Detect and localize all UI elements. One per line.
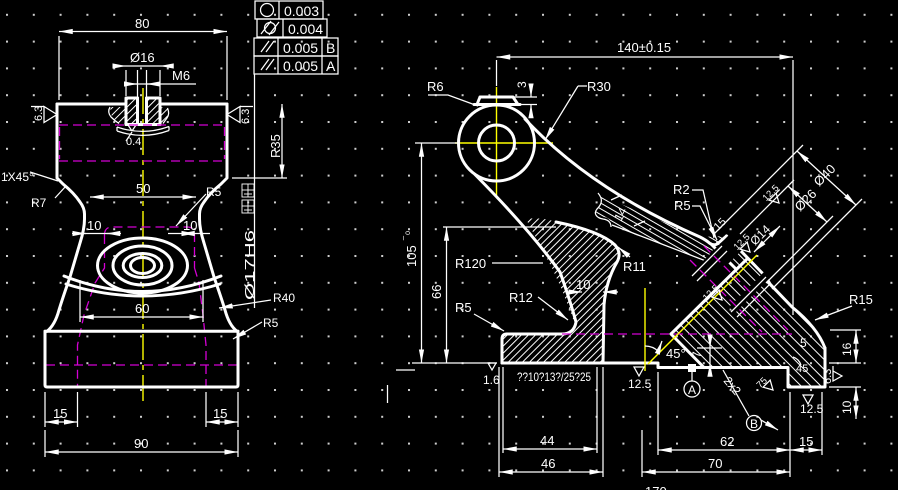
svg-text:12.5: 12.5 — [800, 402, 824, 416]
svg-text:15: 15 — [799, 434, 813, 449]
svg-text:170: 170 — [645, 484, 667, 490]
svg-text:Ø17H6: Ø17H6 — [242, 230, 257, 300]
svg-text:44: 44 — [540, 433, 554, 448]
svg-text:B: B — [326, 40, 335, 56]
svg-text:45: 45 — [796, 363, 808, 375]
svg-text:5: 5 — [800, 336, 807, 350]
svg-text:90: 90 — [134, 436, 148, 451]
svg-text:0.4: 0.4 — [126, 136, 141, 148]
svg-text:R5: R5 — [455, 300, 472, 315]
svg-text:6.3: 6.3 — [33, 106, 45, 121]
svg-text:6.3: 6.3 — [240, 109, 252, 124]
svg-text:140±0.15: 140±0.15 — [617, 40, 671, 55]
svg-text:0.005: 0.005 — [283, 40, 318, 56]
svg-text:Ø16: Ø16 — [130, 50, 155, 65]
svg-text:15: 15 — [53, 406, 67, 421]
svg-text:10: 10 — [576, 277, 590, 292]
svg-text:R2: R2 — [673, 182, 690, 197]
svg-text:R5: R5 — [263, 316, 279, 330]
svg-text:R120: R120 — [455, 256, 486, 271]
svg-text:10: 10 — [87, 218, 101, 233]
svg-text:R5: R5 — [206, 185, 222, 199]
svg-text:66: 66 — [429, 285, 444, 299]
svg-text:7: 7 — [690, 351, 704, 358]
svg-text:R35: R35 — [268, 134, 283, 158]
svg-text:45°: 45° — [666, 346, 686, 361]
svg-text:R5: R5 — [674, 198, 691, 213]
svg-text:M6: M6 — [172, 68, 190, 83]
svg-text:R15: R15 — [849, 292, 873, 307]
svg-text:105: 105 — [404, 245, 419, 267]
svg-text:0.004: 0.004 — [288, 21, 323, 37]
svg-text:R6: R6 — [427, 79, 444, 94]
svg-text:R30: R30 — [587, 79, 611, 94]
svg-text:46: 46 — [541, 456, 555, 471]
svg-text:B: B — [750, 417, 758, 431]
svg-text:1.6: 1.6 — [483, 373, 500, 387]
svg-text:R7: R7 — [31, 196, 47, 210]
svg-text:12.5: 12.5 — [628, 377, 652, 391]
svg-text:10: 10 — [840, 400, 854, 414]
svg-text:A: A — [688, 383, 696, 397]
svg-text:50: 50 — [136, 181, 150, 196]
svg-text:R40: R40 — [273, 291, 295, 305]
svg-text:R12: R12 — [509, 290, 533, 305]
svg-text:⁻₀: ⁻₀ — [400, 231, 412, 241]
svg-text:0.003: 0.003 — [284, 3, 319, 19]
svg-text:80: 80 — [135, 16, 149, 31]
svg-text:??10?13?/25?25: ??10?13?/25?25 — [517, 370, 591, 384]
svg-text:6.3: 6.3 — [822, 369, 834, 384]
svg-text:15: 15 — [213, 406, 227, 421]
svg-text:16: 16 — [840, 342, 854, 356]
svg-text:3: 3 — [515, 81, 529, 88]
svg-text:62: 62 — [720, 434, 734, 449]
svg-text:0.005: 0.005 — [283, 58, 318, 74]
svg-text:1X45°: 1X45° — [1, 170, 34, 184]
svg-text:70: 70 — [708, 456, 722, 471]
svg-text:10: 10 — [183, 218, 197, 233]
svg-text:R11: R11 — [623, 259, 646, 274]
svg-text:60: 60 — [135, 301, 149, 316]
svg-text:A: A — [326, 58, 336, 74]
